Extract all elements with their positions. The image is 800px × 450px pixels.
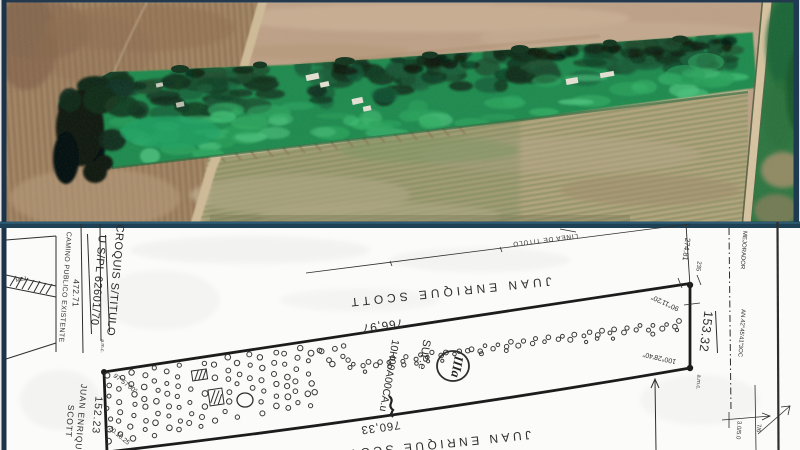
- svg-text:a.m.c.: a.m.c.: [99, 339, 105, 353]
- svg-text:7/6: 7/6: [755, 424, 762, 433]
- svg-text:472.71: 472.71: [71, 279, 82, 307]
